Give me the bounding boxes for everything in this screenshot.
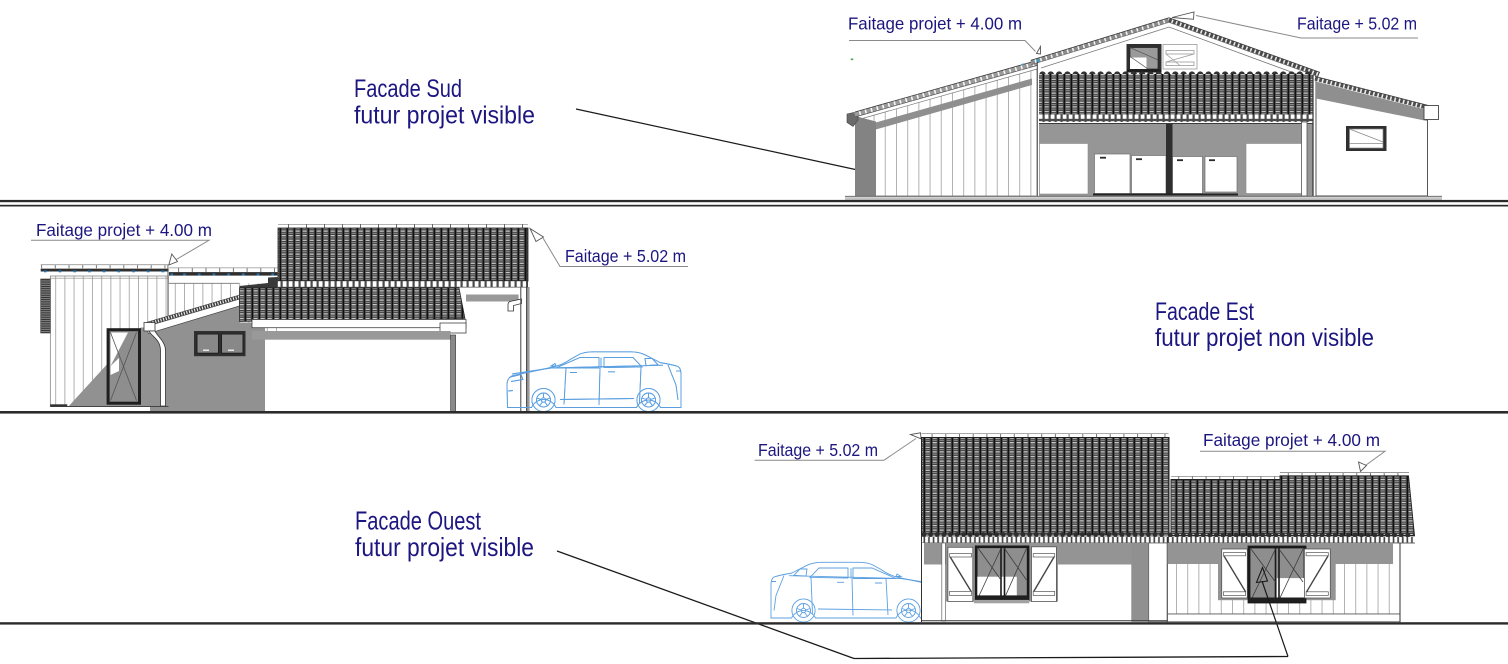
- svg-text:futur projet visible: futur projet visible: [355, 532, 534, 562]
- svg-text:Faitage + 5.02 m: Faitage + 5.02 m: [1297, 14, 1417, 34]
- svg-text:Facade Ouest: Facade Ouest: [355, 506, 482, 536]
- svg-text:Faitage projet + 4.00 m: Faitage projet + 4.00 m: [848, 14, 1022, 34]
- svg-text:Faitage + 5.02 m: Faitage + 5.02 m: [758, 440, 878, 460]
- svg-text:futur projet non visible: futur projet non visible: [1155, 324, 1374, 352]
- svg-text:futur projet visible: futur projet visible: [354, 102, 535, 130]
- svg-text:Facade Sud: Facade Sud: [354, 75, 462, 103]
- svg-text:Facade Est: Facade Est: [1155, 298, 1254, 326]
- svg-text:Faitage + 5.02 m: Faitage + 5.02 m: [565, 246, 686, 266]
- svg-text:Faitage projet + 4.00 m: Faitage projet + 4.00 m: [1203, 430, 1380, 450]
- svg-text:Faitage projet + 4.00 m: Faitage projet + 4.00 m: [36, 220, 212, 240]
